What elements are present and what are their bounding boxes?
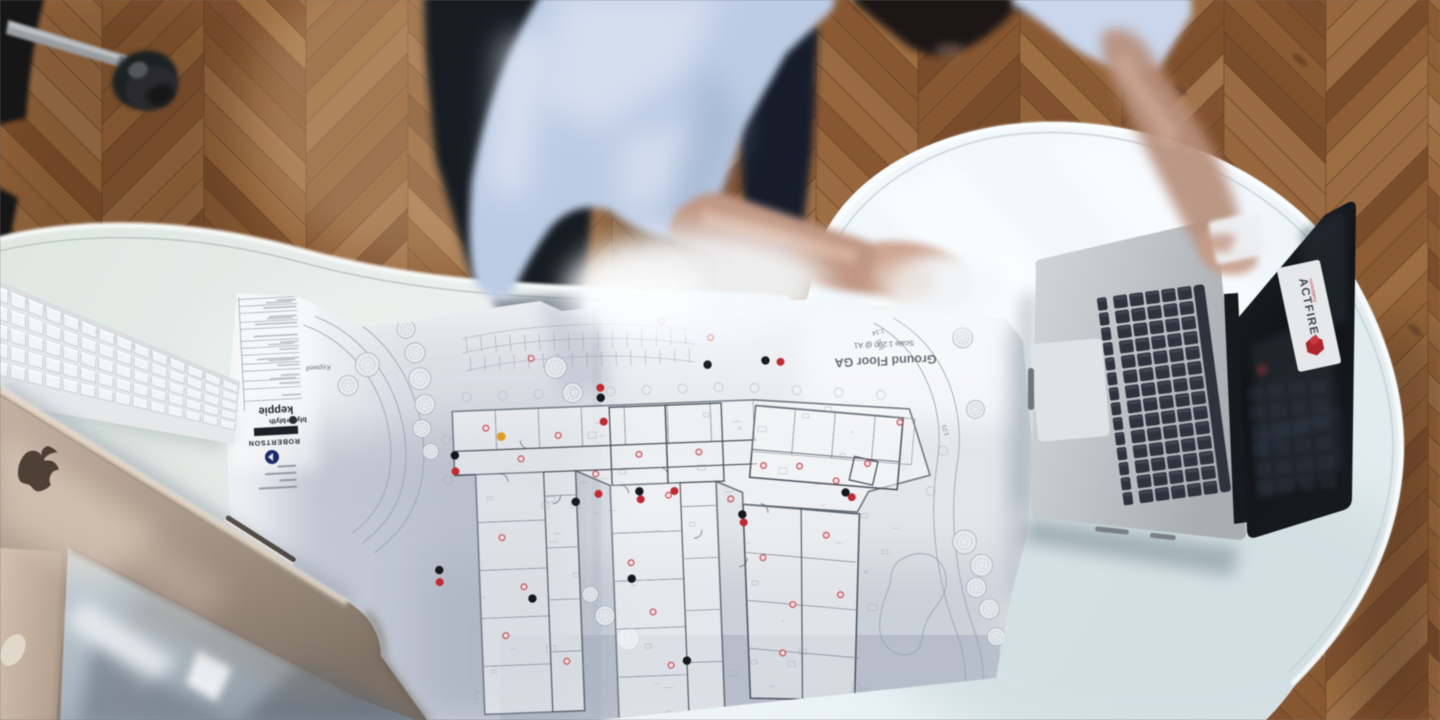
svg-text:keppie: keppie — [258, 403, 293, 417]
svg-text:Kepwell: Kepwell — [306, 363, 331, 371]
